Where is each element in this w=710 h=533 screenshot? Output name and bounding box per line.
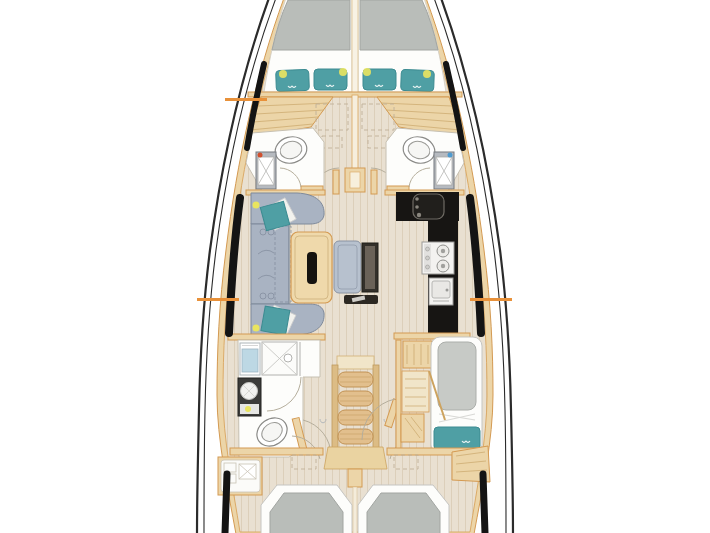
burner [437, 260, 449, 272]
burner [437, 245, 449, 257]
shower-seat [240, 343, 260, 375]
port-aft-window [225, 474, 227, 533]
yacht-floor-plan [0, 0, 710, 533]
dining-table [291, 232, 332, 303]
port-aft-bed [261, 485, 352, 533]
aft-center-divider [353, 487, 357, 533]
stairs-platform [324, 447, 387, 469]
berth-wall [396, 340, 401, 454]
sink-unit [434, 152, 454, 189]
starboard-aft-window [483, 474, 485, 533]
galley-sink [413, 194, 444, 219]
berth-mattress [438, 342, 476, 410]
starboard-head [386, 128, 464, 191]
cold-tap-dot [448, 153, 453, 158]
port-midship-section-marker [197, 298, 239, 301]
sofa-main [251, 224, 289, 304]
media-shelf [344, 295, 378, 304]
port-forward-section-marker [225, 98, 267, 101]
center-post [348, 469, 362, 487]
salon-lamp-dot [253, 202, 260, 209]
cabin-partition [352, 95, 358, 170]
stove [422, 242, 454, 274]
stairs-landing [337, 356, 374, 369]
port-head [246, 128, 324, 191]
tv-panel [362, 243, 378, 292]
starboard-aft-berth [396, 337, 482, 454]
faucet-dot [417, 213, 421, 217]
berth-pillow [434, 427, 480, 450]
sink-unit [256, 152, 276, 189]
starboard-midship-section-marker [470, 298, 512, 301]
table-leaf-slot [307, 252, 317, 284]
starboard-aft-bed [358, 485, 449, 533]
stairs-rail [332, 365, 338, 449]
port-aft-cabin-wall [230, 448, 323, 455]
vberth-center-divider [352, 0, 358, 94]
salon-lamp-dot [253, 325, 260, 332]
port-aft-bulkhead [228, 334, 325, 340]
mast-post [345, 168, 365, 192]
oven-fridge [429, 278, 453, 305]
vanity-sink [238, 378, 261, 416]
vanity-lamp-dot [245, 406, 251, 412]
salon-bench [334, 241, 361, 293]
hot-tap-dot [258, 153, 263, 158]
shower-drain [284, 354, 292, 362]
